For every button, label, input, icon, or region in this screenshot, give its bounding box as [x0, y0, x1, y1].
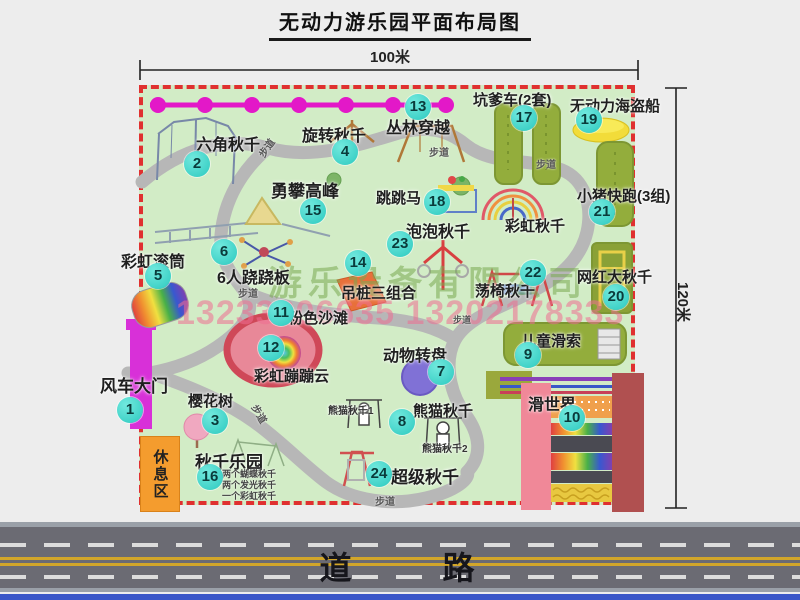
item-11-badge: 11 [268, 300, 294, 326]
item-1-label: 风车大门 [100, 372, 168, 397]
dimension-height-label: 120米 [673, 282, 694, 322]
bottom-blue-strip [0, 594, 800, 600]
road-label: 道 路 [0, 543, 800, 589]
item-5-badge: 5 [145, 263, 171, 289]
path-label-2: 步道 [429, 144, 449, 159]
item-1-badge: 1 [117, 397, 143, 423]
item-19-badge: 19 [576, 107, 602, 133]
item-8-badge: 8 [389, 409, 415, 435]
item-18-badge: 18 [424, 189, 450, 215]
path-label-7: 步道 [453, 313, 471, 326]
item-2-badge: 2 [184, 151, 210, 177]
playground-layout-map: 无动力游乐园平面布局图 [0, 0, 800, 600]
item-13-badge: 13 [405, 94, 431, 120]
swing-park-note-3: 一个彩虹秋千 [222, 489, 276, 502]
item-23-badge: 23 [387, 231, 413, 257]
item-12-badge: 12 [258, 335, 284, 361]
panda-swing-2-label: 熊猫秋千2 [422, 440, 468, 455]
item-23-label: 泡泡秋千 [406, 218, 470, 242]
item-14-label: 吊桩三组合 [341, 282, 416, 303]
rest-area: 休息区 [140, 436, 180, 512]
rest-area-label: 休息区 [150, 449, 171, 500]
panda-swing-1-label: 熊猫秋千1 [328, 402, 374, 417]
dimension-width-label: 100米 [370, 46, 410, 67]
item-17-label: 坑爹车(2套) [473, 89, 551, 110]
item-9-badge: 9 [515, 342, 541, 368]
road: 道 路 [0, 522, 800, 592]
item-8-label: 熊猫秋千 [413, 400, 473, 421]
item-12-label: 彩虹蹦蹦云 [254, 365, 329, 386]
item-15-label: 勇攀高峰 [271, 177, 339, 202]
rainbow-swing-label: 彩虹秋千 [505, 215, 565, 236]
item-22-badge: 22 [520, 260, 546, 286]
item-24-label: 超级秋千 [391, 463, 459, 488]
item-2-label: 六角秋千 [196, 131, 260, 155]
path-label-6: 步道 [375, 493, 395, 508]
item-15-badge: 15 [300, 198, 326, 224]
item-7-badge: 7 [428, 359, 454, 385]
item-3-badge: 3 [202, 408, 228, 434]
page-title: 无动力游乐园平面布局图 [269, 6, 531, 41]
item-14-badge: 14 [345, 250, 371, 276]
item-4-badge: 4 [332, 139, 358, 165]
item-10-badge: 10 [559, 405, 585, 431]
item-16-badge: 16 [197, 464, 223, 490]
item-11-label: 粉色沙滩 [288, 307, 348, 328]
item-18-label: 跳跳马 [376, 187, 421, 208]
item-20-badge: 20 [603, 284, 629, 310]
item-4-label: 旋转秋千 [302, 122, 366, 146]
item-21-badge: 21 [589, 199, 615, 225]
item-17-badge: 17 [511, 105, 537, 131]
item-6-badge: 6 [211, 239, 237, 265]
path-label-4: 步道 [238, 285, 258, 300]
item-24-badge: 24 [366, 461, 392, 487]
path-label-3: 步道 [536, 156, 556, 171]
